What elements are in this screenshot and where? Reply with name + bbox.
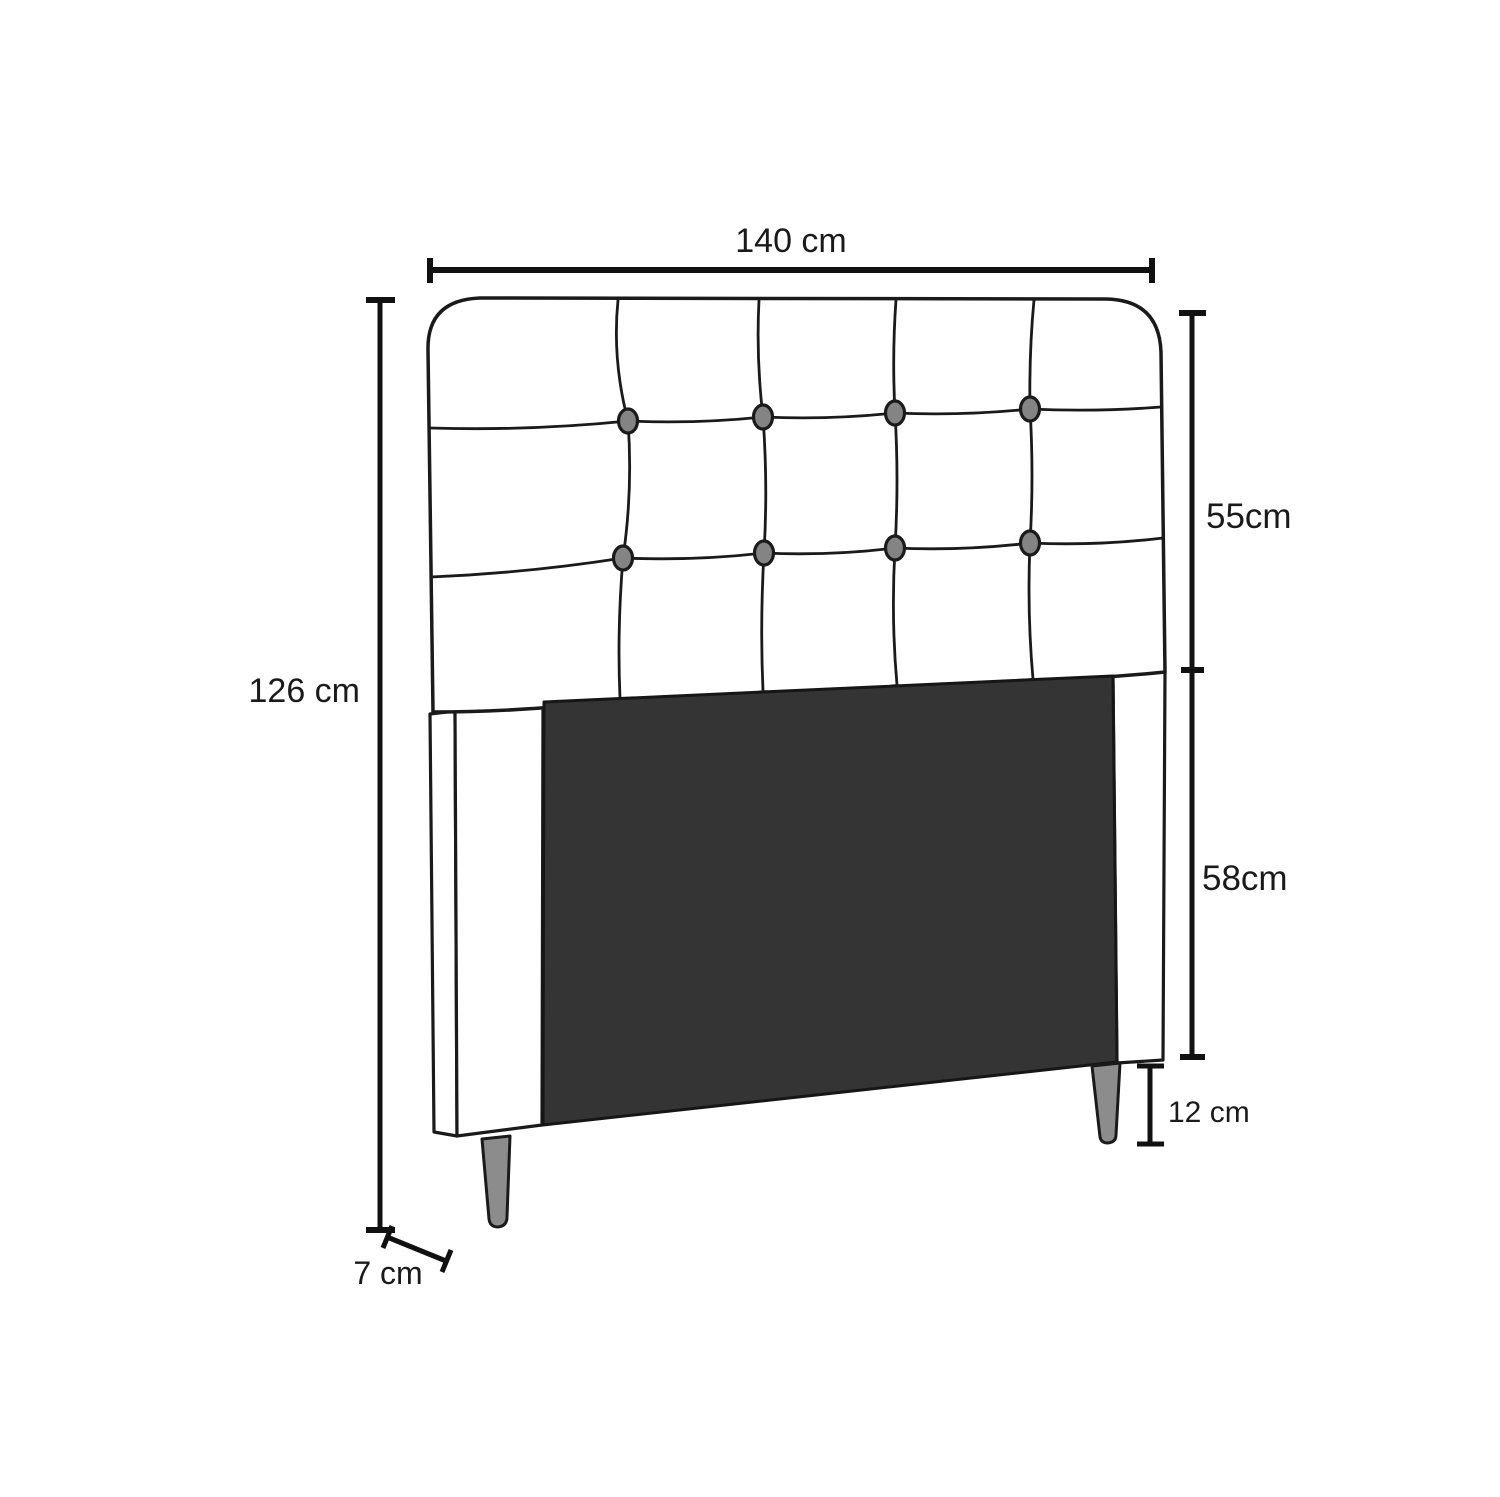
- tufting-button: [886, 401, 905, 425]
- upper-height-dimension: [1179, 313, 1206, 670]
- left-leg: [482, 1136, 510, 1227]
- leg-height-dimension: [1137, 1066, 1164, 1144]
- depth-dimension-label: 7 cm: [353, 1255, 422, 1291]
- width-dimension-label: 140 cm: [735, 222, 847, 260]
- headboard-drawing: [428, 298, 1165, 1227]
- upholstered-panel: [428, 298, 1165, 712]
- total-height-dimension: [366, 300, 395, 1230]
- tufting-button: [1021, 397, 1040, 421]
- tufting-button: [755, 541, 774, 565]
- headboard-diagram-svg: 140 cm 126 cm 55cm 58cm 12 cm 7 cm: [0, 0, 1500, 1497]
- back-panel: [543, 676, 1117, 1125]
- tufting-button: [886, 536, 905, 560]
- right-leg: [1092, 1063, 1120, 1143]
- total-height-dimension-label: 126 cm: [249, 672, 361, 710]
- upper-height-dimension-label: 55cm: [1206, 497, 1292, 536]
- leg-height-dimension-label: 12 cm: [1168, 1096, 1250, 1129]
- width-dimension: [430, 258, 1152, 283]
- left-post-front-face: [455, 704, 543, 1136]
- tufting-button: [754, 405, 773, 429]
- tufting-button: [619, 409, 638, 433]
- tufting-button: [1021, 531, 1040, 555]
- left-post-side-face: [430, 711, 457, 1136]
- headboard-dimension-diagram: 140 cm 126 cm 55cm 58cm 12 cm 7 cm: [0, 0, 1500, 1497]
- tufting-button: [614, 546, 633, 570]
- lower-height-dimension-label: 58cm: [1202, 859, 1288, 898]
- right-frame-edge: [1113, 672, 1165, 1063]
